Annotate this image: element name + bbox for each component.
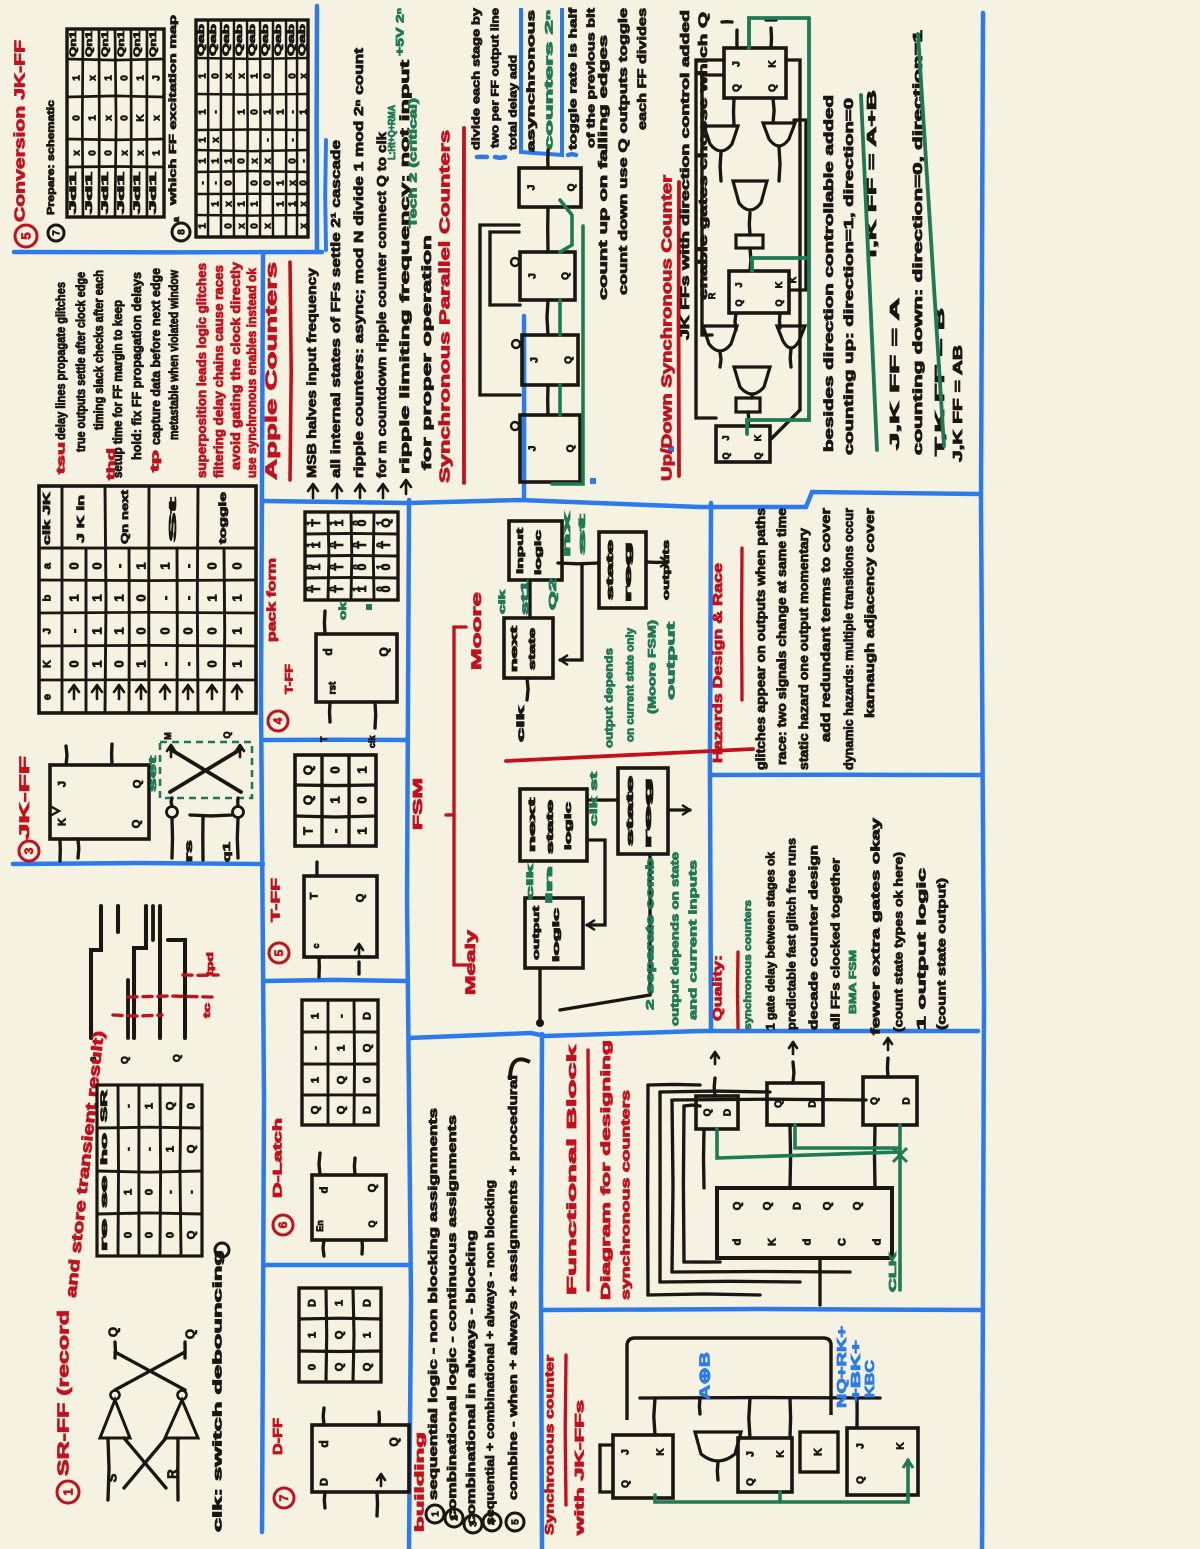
svg-text:b: b	[42, 594, 54, 601]
svg-text:input: input	[515, 528, 525, 574]
svg-text:x: x	[262, 158, 273, 164]
svg-text:-: -	[287, 110, 298, 113]
svg-text:Up/Down Synchronous Counter: Up/Down Synchronous Counter	[659, 175, 676, 481]
svg-text:1: 1	[275, 180, 286, 186]
svg-text:all FFs clocked together: all FFs clocked together	[828, 858, 842, 1030]
svg-text:Conversion JK-FF: Conversion JK-FF	[12, 40, 29, 222]
svg-text:0: 0	[133, 594, 148, 601]
svg-text:0: 0	[119, 75, 130, 81]
svg-text:count up on falling edges: count up on falling edges	[598, 35, 610, 300]
svg-text:output: output	[531, 906, 541, 960]
svg-text:Q: Q	[620, 1480, 631, 1488]
svg-text:J: J	[731, 61, 742, 67]
svg-text:1: 1	[197, 137, 208, 143]
svg-text:K: K	[895, 1442, 906, 1450]
svg-text:0: 0	[305, 564, 315, 569]
svg-text:1: 1	[275, 201, 286, 207]
svg-text:-: -	[157, 662, 172, 666]
svg-text:1: 1	[165, 1146, 177, 1152]
svg-text:SR: SR	[99, 1089, 109, 1122]
svg-text:ripple counters: async; mod N: ripple counters: async; mod N divide 1 m…	[351, 47, 366, 478]
svg-text:0: 0	[165, 1232, 177, 1238]
svg-text:Q: Q	[565, 444, 576, 452]
svg-text:and current inputs: and current inputs	[688, 860, 700, 1020]
svg-text:1: 1	[236, 201, 247, 207]
svg-text:Qab: Qab	[286, 23, 296, 56]
svg-text:0: 0	[204, 660, 219, 667]
svg-text:C: C	[837, 1238, 849, 1246]
svg-text:BMA FSM: BMA FSM	[848, 950, 859, 1014]
svg-text:1: 1	[197, 223, 208, 229]
svg-text:1: 1	[287, 201, 298, 207]
svg-text:NQ+RK+: NQ+RK+	[834, 1325, 849, 1408]
svg-text:static hazard one output momen: static hazard one output momentary	[797, 528, 811, 770]
svg-text:a: a	[42, 562, 54, 569]
svg-text:all internal states of FFs set: all internal states of FFs settle 2¹ cas…	[328, 140, 343, 478]
svg-text:Qn1: Qn1	[132, 31, 142, 57]
svg-text:se: se	[99, 1176, 109, 1208]
svg-text:karnaugh adjacency cover: karnaugh adjacency cover	[863, 508, 877, 718]
svg-text:rst: rst	[327, 681, 338, 694]
svg-text:0: 0	[123, 1232, 135, 1238]
svg-text:Q: Q	[745, 1478, 756, 1486]
svg-text:Tech 2 (critical): Tech 2 (critical)	[408, 97, 420, 228]
svg-text:1: 1	[298, 109, 309, 115]
svg-text:Q: Q	[773, 1100, 784, 1108]
svg-text:ok: ok	[338, 601, 349, 620]
svg-text:Q: Q	[362, 1043, 374, 1052]
svg-text:T: T	[309, 892, 321, 899]
svg-text:Q: Q	[377, 647, 391, 656]
svg-text:Apple Counters: Apple Counters	[263, 262, 280, 480]
svg-text:-: -	[327, 829, 342, 833]
svg-text:combinational in always - bloc: combinational in always - blocking	[466, 1230, 478, 1525]
svg-text:x: x	[103, 115, 114, 121]
svg-text:capture data before next edge: capture data before next edge	[149, 268, 163, 445]
svg-text:Q: Q	[186, 1230, 198, 1239]
svg-text:1: 1	[157, 562, 172, 569]
svg-text:Q: Q	[387, 1437, 401, 1446]
svg-text:5: 5	[510, 1519, 521, 1525]
svg-text:1: 1	[305, 520, 315, 525]
svg-text:d: d	[732, 1239, 744, 1246]
svg-text:ho: ho	[99, 1132, 109, 1165]
svg-text:Q2: Q2	[548, 577, 559, 610]
svg-text:Q: Q	[336, 1075, 348, 1084]
svg-text:1: 1	[351, 586, 361, 591]
svg-text:pack form: pack form	[264, 558, 278, 642]
svg-text:Qn1: Qn1	[116, 31, 126, 57]
svg-text:-: -	[210, 181, 221, 184]
svg-text:state: state	[545, 800, 555, 854]
svg-text:with JK-FFs: with JK-FFs	[572, 1399, 586, 1537]
svg-text:tsu: tsu	[56, 442, 68, 474]
svg-text:0: 0	[351, 542, 361, 547]
svg-text:Q: Q	[105, 1327, 120, 1337]
svg-text:-: -	[262, 138, 273, 141]
svg-text:0: 0	[327, 766, 342, 773]
svg-text:J K in: J K in	[76, 495, 87, 543]
svg-text:0: 0	[328, 564, 338, 569]
svg-text:1: 1	[327, 796, 342, 803]
svg-text:Q: Q	[300, 765, 315, 775]
svg-text:timing slack checks after each: timing slack checks after each	[92, 270, 106, 430]
svg-text:next: next	[509, 626, 519, 672]
svg-text:combine - when + always + assi: combine - when + always + assignments + …	[508, 1075, 520, 1500]
svg-text:0: 0	[375, 542, 385, 547]
svg-text:state: state	[605, 540, 615, 600]
svg-text:(count state output): (count state output)	[934, 878, 948, 1030]
svg-text:filtering delay chains cause r: filtering delay chains cause races	[211, 265, 226, 478]
svg-text:Q: Q	[300, 795, 315, 805]
svg-text:1: 1	[111, 594, 126, 601]
svg-text:KBC: KBC	[862, 1359, 877, 1398]
svg-text:1: 1	[103, 75, 114, 81]
svg-text:Q: Q	[762, 1201, 774, 1210]
svg-text:0: 0	[157, 627, 172, 634]
svg-text:J,K FF = AB: J,K FF = AB	[951, 345, 965, 462]
svg-text:Q: Q	[753, 452, 763, 459]
svg-text:counting up: direction=1, dire: counting up: direction=1, direction=0	[842, 98, 856, 455]
svg-text:d: d	[321, 648, 335, 655]
svg-text:nx: nx	[562, 510, 573, 557]
svg-text:x: x	[236, 223, 247, 229]
svg-text:1: 1	[144, 1103, 156, 1109]
svg-text:1: 1	[354, 827, 369, 834]
svg-text:x: x	[298, 223, 309, 229]
svg-text:Qab: Qab	[234, 23, 244, 56]
svg-text:-: -	[180, 596, 195, 600]
svg-text:0: 0	[307, 1364, 319, 1370]
svg-text:clk: clk	[497, 588, 507, 614]
svg-text:x: x	[71, 150, 82, 156]
svg-text:Q: Q	[367, 1220, 377, 1227]
svg-text:asynchronous: asynchronous	[526, 10, 538, 152]
svg-text:x: x	[298, 73, 309, 79]
svg-text:J: J	[721, 435, 731, 440]
svg-text:Q: Q	[852, 1201, 864, 1210]
svg-text:R: R	[707, 292, 717, 299]
svg-text:use synchronous enables instea: use synchronous enables instead ok	[244, 267, 259, 478]
svg-text:Q: Q	[855, 1476, 866, 1484]
svg-text:K: K	[767, 1238, 779, 1246]
svg-text:1: 1	[249, 73, 260, 79]
svg-text:K: K	[767, 60, 778, 68]
svg-text:D: D	[807, 1100, 818, 1107]
svg-text:0: 0	[249, 180, 260, 186]
svg-text:0: 0	[210, 73, 221, 79]
svg-text:4: 4	[487, 1519, 498, 1525]
svg-text:T-FF: T-FF	[268, 878, 282, 922]
svg-text:0: 0	[111, 660, 126, 667]
svg-text:7: 7	[51, 230, 62, 236]
svg-text:fewer extra gates okay: fewer extra gates okay	[868, 817, 882, 1035]
svg-text:S: S	[104, 1473, 119, 1482]
svg-text:Qab: Qab	[260, 23, 270, 56]
svg-text:A⊕B: A⊕B	[697, 1352, 714, 1400]
svg-text:-: -	[180, 564, 195, 568]
svg-text:J: J	[620, 1449, 631, 1455]
svg-text:1: 1	[210, 201, 221, 207]
svg-text:q1: q1	[222, 841, 233, 862]
svg-text:0: 0	[66, 562, 81, 569]
svg-text:D: D	[307, 1299, 319, 1307]
svg-text:1: 1	[87, 115, 98, 121]
svg-text:0: 0	[362, 1077, 374, 1083]
svg-text:toggle rate is half: toggle rate is half	[568, 7, 580, 150]
svg-text:sequential logic - non blockin: sequential logic - non blocking assignme…	[428, 1108, 440, 1500]
svg-text:1: 1	[89, 594, 104, 601]
svg-text:1: 1	[249, 201, 260, 207]
svg-text:Moore: Moore	[468, 592, 484, 670]
svg-text:dynamic hazards: multiple tran: dynamic hazards: multiple transitions oc…	[842, 508, 856, 770]
svg-text:D: D	[901, 1097, 912, 1104]
svg-text:Q: Q	[334, 1362, 346, 1371]
svg-text:1: 1	[310, 1077, 322, 1083]
svg-text:1: 1	[66, 594, 81, 601]
svg-text:clk st: clk st	[589, 771, 600, 826]
svg-text:1: 1	[362, 1332, 374, 1338]
svg-text:0: 0	[186, 1103, 198, 1109]
svg-text:-: -	[144, 1147, 156, 1151]
svg-text:1: 1	[133, 562, 148, 569]
svg-text:-: -	[210, 110, 221, 113]
svg-text:clk: clk	[516, 705, 527, 742]
svg-text:D: D	[362, 1299, 374, 1307]
svg-text:K: K	[753, 434, 763, 441]
svg-text:D: D	[792, 1202, 804, 1210]
svg-text:0: 0	[262, 73, 273, 79]
svg-text:1: 1	[89, 660, 104, 667]
svg-text:x: x	[87, 75, 98, 81]
svg-text:clk JK: clk JK	[42, 491, 53, 545]
svg-text:d: d	[319, 1187, 331, 1194]
svg-text:1: 1	[430, 1511, 441, 1517]
svg-text:count down use Q outputs toggl: count down use Q outputs toggle	[618, 8, 630, 295]
svg-text:add redundant terms to cover: add redundant terms to cover	[819, 508, 833, 742]
svg-text:2 separate comb: 2 separate comb	[645, 858, 657, 1010]
svg-text:x: x	[249, 158, 260, 164]
svg-text:output depends: output depends	[604, 648, 616, 748]
svg-text:sequential + combinational + a: sequential + combinational + always - no…	[485, 1180, 497, 1525]
svg-text:e: e	[42, 694, 54, 700]
svg-text:4: 4	[271, 717, 285, 724]
svg-text:1: 1	[229, 627, 244, 634]
svg-text:rs: rs	[184, 839, 195, 862]
svg-text:hold: fix FF propagation delay: hold: fix FF propagation delays	[130, 272, 144, 460]
svg-text:tpd: tpd	[205, 952, 215, 976]
svg-text:d: d	[802, 1239, 814, 1246]
svg-text:5: 5	[272, 949, 286, 956]
svg-text:state: state	[527, 628, 537, 670]
svg-text:delay lines propagate glitches: delay lines propagate glitches	[54, 282, 68, 440]
svg-text:0: 0	[119, 115, 130, 121]
svg-text:L:Ht+Q+RMA: L:Ht+Q+RMA	[387, 105, 398, 160]
svg-text:d: d	[317, 1440, 331, 1447]
svg-text:0: 0	[249, 109, 260, 115]
svg-text:J: J	[529, 357, 540, 363]
svg-text:c: c	[311, 943, 321, 948]
svg-text:Q: Q	[732, 1201, 744, 1210]
svg-text:x: x	[298, 201, 309, 207]
svg-text:1: 1	[236, 109, 247, 115]
svg-text:0: 0	[287, 73, 298, 79]
svg-text:K: K	[57, 818, 69, 826]
svg-text:Q: Q	[774, 299, 784, 306]
svg-text:1: 1	[197, 158, 208, 164]
svg-text:x: x	[223, 73, 234, 79]
svg-text:3: 3	[468, 1521, 479, 1527]
svg-text:0: 0	[223, 180, 234, 186]
svg-text:T: T	[319, 736, 329, 742]
svg-text:1: 1	[133, 660, 148, 667]
svg-text:metastable when violated windo: metastable when violated window	[167, 270, 181, 440]
svg-text:on current state only: on current state only	[625, 627, 637, 742]
svg-text:1: 1	[223, 158, 234, 164]
svg-text:0: 0	[236, 158, 247, 164]
svg-text:st1: st1	[520, 579, 531, 615]
svg-text:0: 0	[328, 586, 338, 591]
svg-text:glitches appear on outputs whe: glitches appear on outputs when paths	[754, 508, 768, 770]
svg-text:JK FFs with direction control: JK FFs with direction control added	[680, 10, 692, 340]
svg-text:0: 0	[305, 586, 315, 591]
svg-text:1: 1	[135, 75, 146, 81]
svg-text:Jd1: Jd1	[100, 172, 110, 214]
svg-text:0: 0	[328, 542, 338, 547]
svg-text:-: -	[336, 1014, 348, 1018]
svg-text:-: -	[165, 1190, 177, 1194]
svg-text:K: K	[135, 114, 146, 122]
svg-text:Qab: Qab	[196, 23, 206, 56]
svg-text:D: D	[722, 1109, 733, 1116]
svg-text:K: K	[813, 1448, 825, 1456]
svg-text:J: J	[57, 781, 69, 787]
svg-text:K: K	[774, 281, 784, 288]
svg-text:M: M	[163, 732, 173, 740]
svg-text:Q: Q	[566, 183, 577, 191]
svg-text:building: building	[412, 1432, 426, 1532]
svg-text:st: st	[577, 515, 587, 555]
svg-text:re: re	[99, 1219, 109, 1251]
svg-text:D: D	[319, 1478, 331, 1486]
svg-text:R: R	[164, 1469, 179, 1479]
svg-text:Jd1: Jd1	[148, 172, 158, 214]
svg-text:race: two signals change at sa: race: two signals change at same time	[775, 508, 789, 765]
svg-text:Q: Q	[563, 356, 574, 364]
svg-text:Functional Block: Functional Block	[564, 1043, 579, 1295]
svg-text:1: 1	[375, 520, 385, 525]
svg-text:set: set	[148, 754, 159, 792]
svg-text:-: -	[298, 159, 309, 162]
svg-text:D-Latch: D-Latch	[270, 1118, 284, 1198]
svg-text:0: 0	[66, 660, 81, 667]
svg-text:Qab: Qab	[297, 23, 307, 56]
svg-text:Q: Q	[721, 452, 731, 459]
svg-text:tp: tp	[150, 449, 162, 472]
svg-text:D-FF: D-FF	[270, 1418, 285, 1455]
svg-text:Jd1: Jd1	[68, 172, 78, 214]
svg-text:-: -	[197, 181, 208, 184]
svg-text:Qn1: Qn1	[148, 31, 158, 57]
svg-text:x: x	[210, 137, 221, 143]
svg-text:1: 1	[334, 1300, 346, 1306]
svg-text:0: 0	[223, 223, 234, 229]
svg-text:synchronous counters: synchronous counters	[743, 899, 754, 1030]
svg-text:0: 0	[144, 1189, 156, 1195]
svg-text:+BK+: +BK+	[848, 1339, 863, 1402]
svg-text:Q: Q	[767, 84, 778, 92]
svg-text:total delay add: total delay add	[508, 55, 520, 150]
svg-text:for proper operation: for proper operation	[419, 235, 434, 470]
svg-text:logic: logic	[551, 908, 561, 962]
svg-text:0: 0	[87, 150, 98, 156]
svg-text:x: x	[119, 150, 130, 156]
svg-text:-: -	[123, 1104, 135, 1108]
svg-text:toggle: toggle	[218, 491, 229, 544]
svg-text:Q: Q	[222, 731, 232, 738]
svg-text:of the previous bit: of the previous bit	[586, 8, 598, 148]
svg-text:Q: Q	[734, 299, 744, 306]
svg-text:Q: Q	[182, 1329, 197, 1339]
svg-text:0: 0	[133, 627, 148, 634]
svg-text:0: 0	[229, 562, 244, 569]
svg-text:6: 6	[276, 1221, 290, 1228]
svg-text:0: 0	[351, 520, 361, 525]
svg-text:1 output logic: 1 output logic	[914, 867, 928, 1030]
svg-text:besides direction controllable: besides direction controllable added	[822, 95, 836, 452]
svg-text:Jd1: Jd1	[132, 172, 142, 214]
svg-text:1: 1	[204, 594, 219, 601]
svg-text:Qn next: Qn next	[120, 489, 131, 544]
svg-text:-: -	[66, 629, 81, 633]
svg-text:Mealy: Mealy	[462, 930, 478, 995]
svg-text:0: 0	[262, 180, 273, 186]
svg-text:Synchronous Parallel Counters: Synchronous Parallel Counters	[437, 130, 454, 483]
svg-text:Q: Q	[362, 1362, 374, 1371]
svg-text:Qab: Qab	[273, 23, 283, 56]
svg-text:D: D	[362, 1106, 374, 1114]
svg-text:JK-FF: JK-FF	[16, 755, 32, 840]
svg-text:divide each stage by: divide each stage by	[471, 7, 483, 150]
svg-text:reg: reg	[623, 542, 633, 602]
svg-text:Q: Q	[731, 84, 742, 92]
svg-text:K: K	[788, 276, 798, 283]
svg-text:decade counter design: decade counter design	[806, 845, 820, 1030]
svg-text:thd: thd	[106, 448, 118, 480]
svg-text:Q: Q	[131, 819, 143, 828]
svg-text:0: 0	[204, 627, 219, 634]
svg-text:3: 3	[22, 847, 36, 854]
svg-text:Q: Q	[336, 1105, 348, 1114]
svg-text:J: J	[527, 273, 538, 279]
svg-text:1: 1	[197, 73, 208, 79]
svg-text:1: 1	[328, 520, 338, 525]
svg-text:Q: Q	[132, 779, 144, 788]
svg-text:K: K	[42, 660, 54, 668]
svg-text:clk: clk	[525, 861, 535, 900]
svg-text:Q: Q	[186, 1144, 198, 1153]
svg-text:Q: Q	[822, 1201, 834, 1210]
svg-text:output depends on state: output depends on state	[670, 852, 682, 1026]
svg-text:Quality:: Quality:	[710, 955, 724, 1021]
svg-text:1: 1	[336, 1045, 348, 1051]
svg-text:CLK: CLK	[888, 1251, 899, 1292]
svg-text:J,K FF = A: J,K FF = A	[888, 298, 902, 450]
svg-text:Q: Q	[560, 272, 571, 280]
svg-text:clk: switch debouncing: clk: switch debouncing	[210, 1250, 224, 1532]
svg-text:Q: Q	[702, 1108, 713, 1116]
svg-text:0: 0	[354, 796, 369, 803]
